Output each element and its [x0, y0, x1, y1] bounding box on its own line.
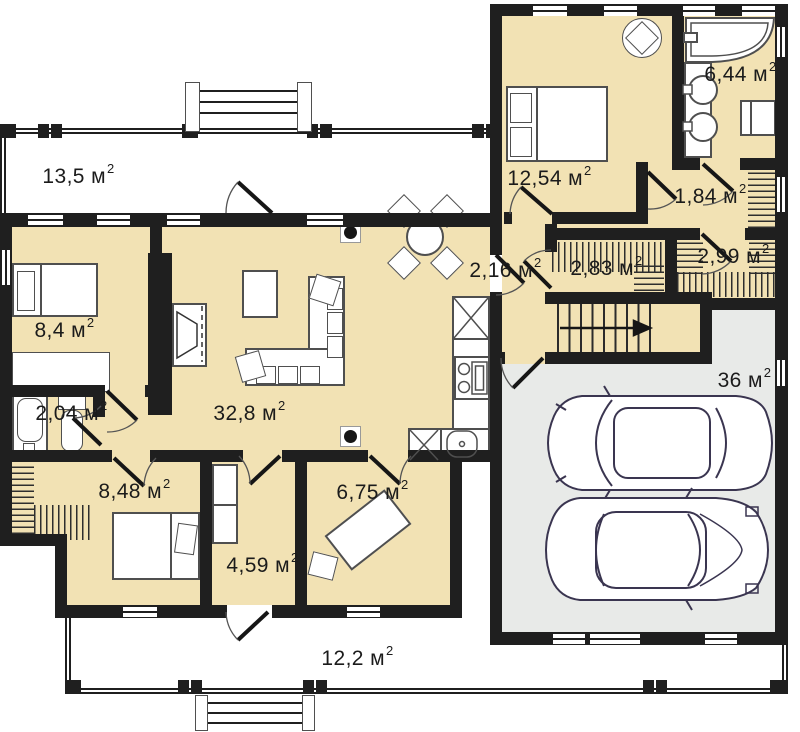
wall-segment	[0, 385, 105, 397]
porch-rail	[200, 112, 297, 114]
wall-segment	[712, 298, 776, 310]
garage-floor	[502, 364, 775, 632]
wall-segment	[282, 450, 368, 462]
wall-segment	[150, 227, 162, 253]
bed-double	[506, 86, 608, 162]
room-label-terrace-top: 13,5 м2	[42, 163, 113, 189]
room-label-office: 6,75 м2	[336, 479, 407, 505]
terrace-pillar	[643, 680, 654, 694]
room-label-bedroom-bottom: 8,48 м2	[98, 478, 169, 504]
wall-segment	[200, 462, 212, 605]
room-label-hall-wardrobe: 1,84 м2	[674, 183, 745, 209]
terrace-pillar	[472, 124, 484, 138]
sofa-cushion	[300, 366, 320, 384]
wall-segment	[0, 213, 502, 227]
column-post	[344, 430, 357, 443]
window	[775, 177, 788, 212]
wall-segment	[775, 4, 788, 645]
wall-segment	[408, 450, 490, 462]
blanket-line	[536, 88, 538, 160]
window	[775, 27, 788, 57]
terrace-pillar	[320, 124, 332, 138]
window	[533, 4, 567, 16]
window	[97, 213, 130, 227]
pillow	[510, 127, 532, 157]
door-swing	[226, 612, 238, 640]
pillow	[174, 523, 198, 555]
terrace-rail	[65, 688, 788, 694]
room-label-garage: 36 м2	[718, 367, 771, 393]
room-label-closet-right: 2,99 м2	[697, 243, 768, 269]
wardrobe-hatch	[12, 464, 34, 540]
window	[167, 213, 200, 227]
terrace-rail	[0, 128, 492, 134]
terrace-pillar	[38, 124, 49, 138]
wall-segment	[545, 352, 712, 364]
room-label-bedroom-top: 12,54 м2	[507, 165, 590, 191]
wall-segment	[552, 212, 648, 224]
room-label-living: 32,8 м2	[213, 400, 284, 426]
bed-single	[12, 263, 98, 317]
window	[123, 605, 157, 618]
pillow	[510, 93, 532, 123]
wall-segment	[0, 534, 67, 546]
terrace-pillar	[656, 680, 667, 694]
wall-segment	[490, 364, 502, 645]
bench-line	[750, 102, 752, 134]
coffee-table	[242, 270, 278, 318]
pillow	[17, 271, 35, 311]
window	[683, 4, 715, 16]
terrace-pillar	[316, 680, 327, 694]
window	[553, 632, 585, 645]
wall-segment	[740, 158, 776, 170]
wall-segment	[150, 450, 243, 462]
wardrobe-line	[214, 504, 236, 506]
window	[28, 213, 63, 227]
sofa-cushion	[327, 312, 343, 334]
wall-segment	[672, 16, 684, 162]
hall-wardrobe	[212, 464, 238, 544]
bath-bench	[740, 100, 776, 136]
terrace-pillar	[178, 680, 189, 694]
window	[775, 360, 788, 386]
wall-segment	[545, 224, 557, 252]
kitchen-stove	[454, 356, 490, 400]
terrace-pillar	[770, 680, 786, 694]
armchair-cushion	[625, 21, 659, 55]
terrace-pillar	[303, 680, 314, 694]
window	[604, 4, 637, 16]
door-leaf	[238, 612, 268, 640]
wall-segment	[490, 352, 505, 364]
window	[742, 4, 775, 16]
wall-segment	[450, 462, 462, 618]
staircase	[557, 304, 653, 352]
garage-floor-upper	[712, 310, 775, 364]
wall-segment	[0, 450, 112, 462]
terrace-rail	[0, 134, 6, 213]
porch-post	[185, 82, 200, 132]
porch-rail	[208, 712, 302, 714]
wall-segment	[636, 162, 648, 224]
fireplace-wall	[148, 253, 172, 415]
wall-segment	[490, 228, 502, 255]
porch-rail	[208, 722, 302, 724]
porch-post	[302, 695, 315, 731]
room-label-bedroom-left: 8,4 м2	[34, 317, 93, 343]
terrace-pillar	[65, 680, 81, 694]
wall-segment	[295, 462, 307, 605]
round-armchair	[622, 18, 662, 58]
room-label-hall-bottom: 4,59 м2	[226, 552, 297, 578]
porch-rail	[200, 101, 297, 103]
blanket-line	[170, 514, 172, 578]
wall-segment	[145, 385, 150, 397]
room-label-closet-left: 2,83 м2	[570, 255, 641, 281]
wall-segment	[504, 212, 512, 224]
window	[590, 632, 640, 645]
room-label-terrace-bottom: 12,2 м2	[321, 645, 392, 671]
room-label-bathroom-top: 6,44 м2	[704, 61, 775, 87]
porch-post	[297, 82, 312, 132]
kitchen-cabinet	[452, 296, 490, 340]
wall-segment	[672, 158, 700, 170]
sofa-cushion	[327, 336, 343, 358]
blanket-line	[40, 265, 42, 315]
outside-notch	[0, 546, 55, 606]
bed-single	[112, 512, 200, 580]
terrace-pillar	[191, 680, 202, 694]
wall-segment	[745, 228, 775, 240]
sofa-cushion	[278, 366, 298, 384]
column-post	[344, 226, 357, 239]
window	[347, 605, 380, 618]
wall-segment	[490, 4, 502, 228]
wall-segment	[545, 292, 712, 304]
terrace-pillar	[0, 124, 16, 138]
floor-plan: 13,5 м2 12,54 м2 6,44 м2 1,84 м2 2,99 м2…	[0, 0, 800, 732]
porch-post	[195, 695, 208, 731]
terrace-pillar	[51, 124, 62, 138]
window	[0, 250, 12, 285]
door-leaf	[238, 182, 272, 213]
porch-rail	[200, 90, 297, 92]
room-label-bathroom-small: 2,04 м2	[35, 400, 106, 426]
door-swing	[226, 182, 238, 213]
window	[307, 213, 343, 227]
wardrobe-hatch	[748, 170, 775, 228]
room-label-hall-stairs: 2,16 м2	[469, 257, 540, 283]
window	[705, 632, 737, 645]
fireplace-box	[172, 303, 207, 367]
wall-segment	[700, 292, 712, 364]
porch-rail	[208, 702, 302, 704]
